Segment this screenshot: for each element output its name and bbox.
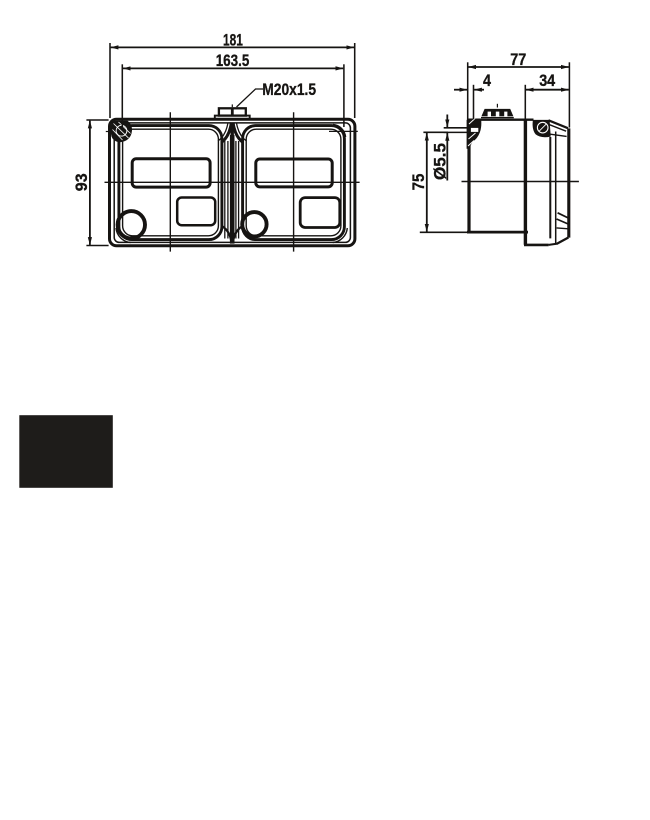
svg-text:4: 4 bbox=[483, 71, 491, 90]
svg-text:163.5: 163.5 bbox=[216, 51, 250, 70]
svg-text:Ø5.5: Ø5.5 bbox=[431, 143, 450, 180]
svg-text:34: 34 bbox=[539, 71, 555, 90]
svg-text:75: 75 bbox=[409, 174, 428, 191]
svg-text:77: 77 bbox=[510, 50, 526, 69]
svg-text:M20x1.5: M20x1.5 bbox=[262, 80, 316, 99]
svg-text:181: 181 bbox=[223, 31, 243, 50]
svg-text:93: 93 bbox=[72, 173, 91, 191]
